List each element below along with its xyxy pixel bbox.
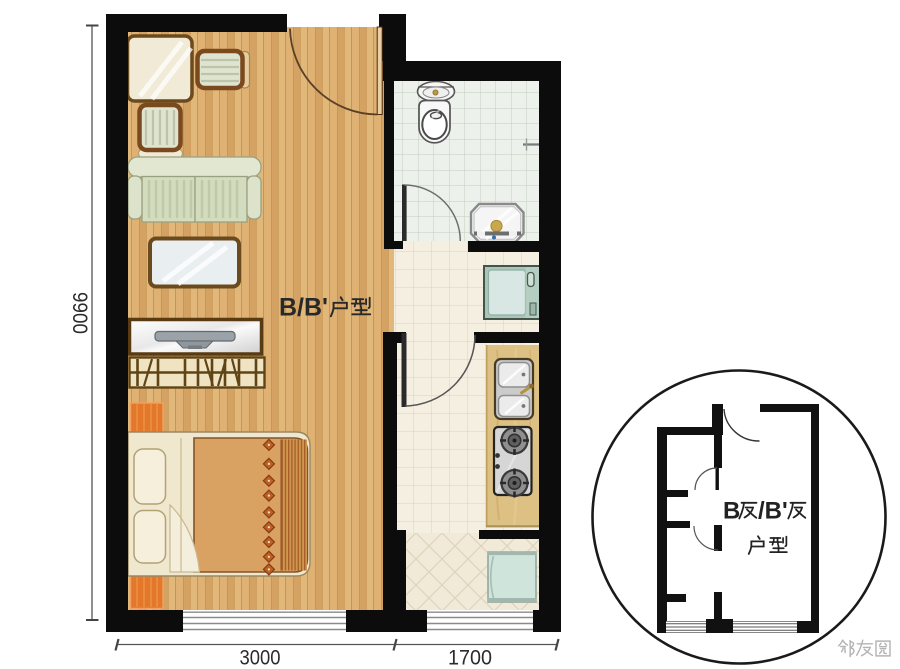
svg-text:B/B': B/B' [279,294,328,322]
svg-text:1700: 1700 [448,646,492,669]
svg-text:0066: 0066 [69,292,93,334]
svg-text:3000: 3000 [240,646,281,669]
svg-text:/B': /B' [758,498,788,525]
svg-text:B: B [723,498,740,525]
